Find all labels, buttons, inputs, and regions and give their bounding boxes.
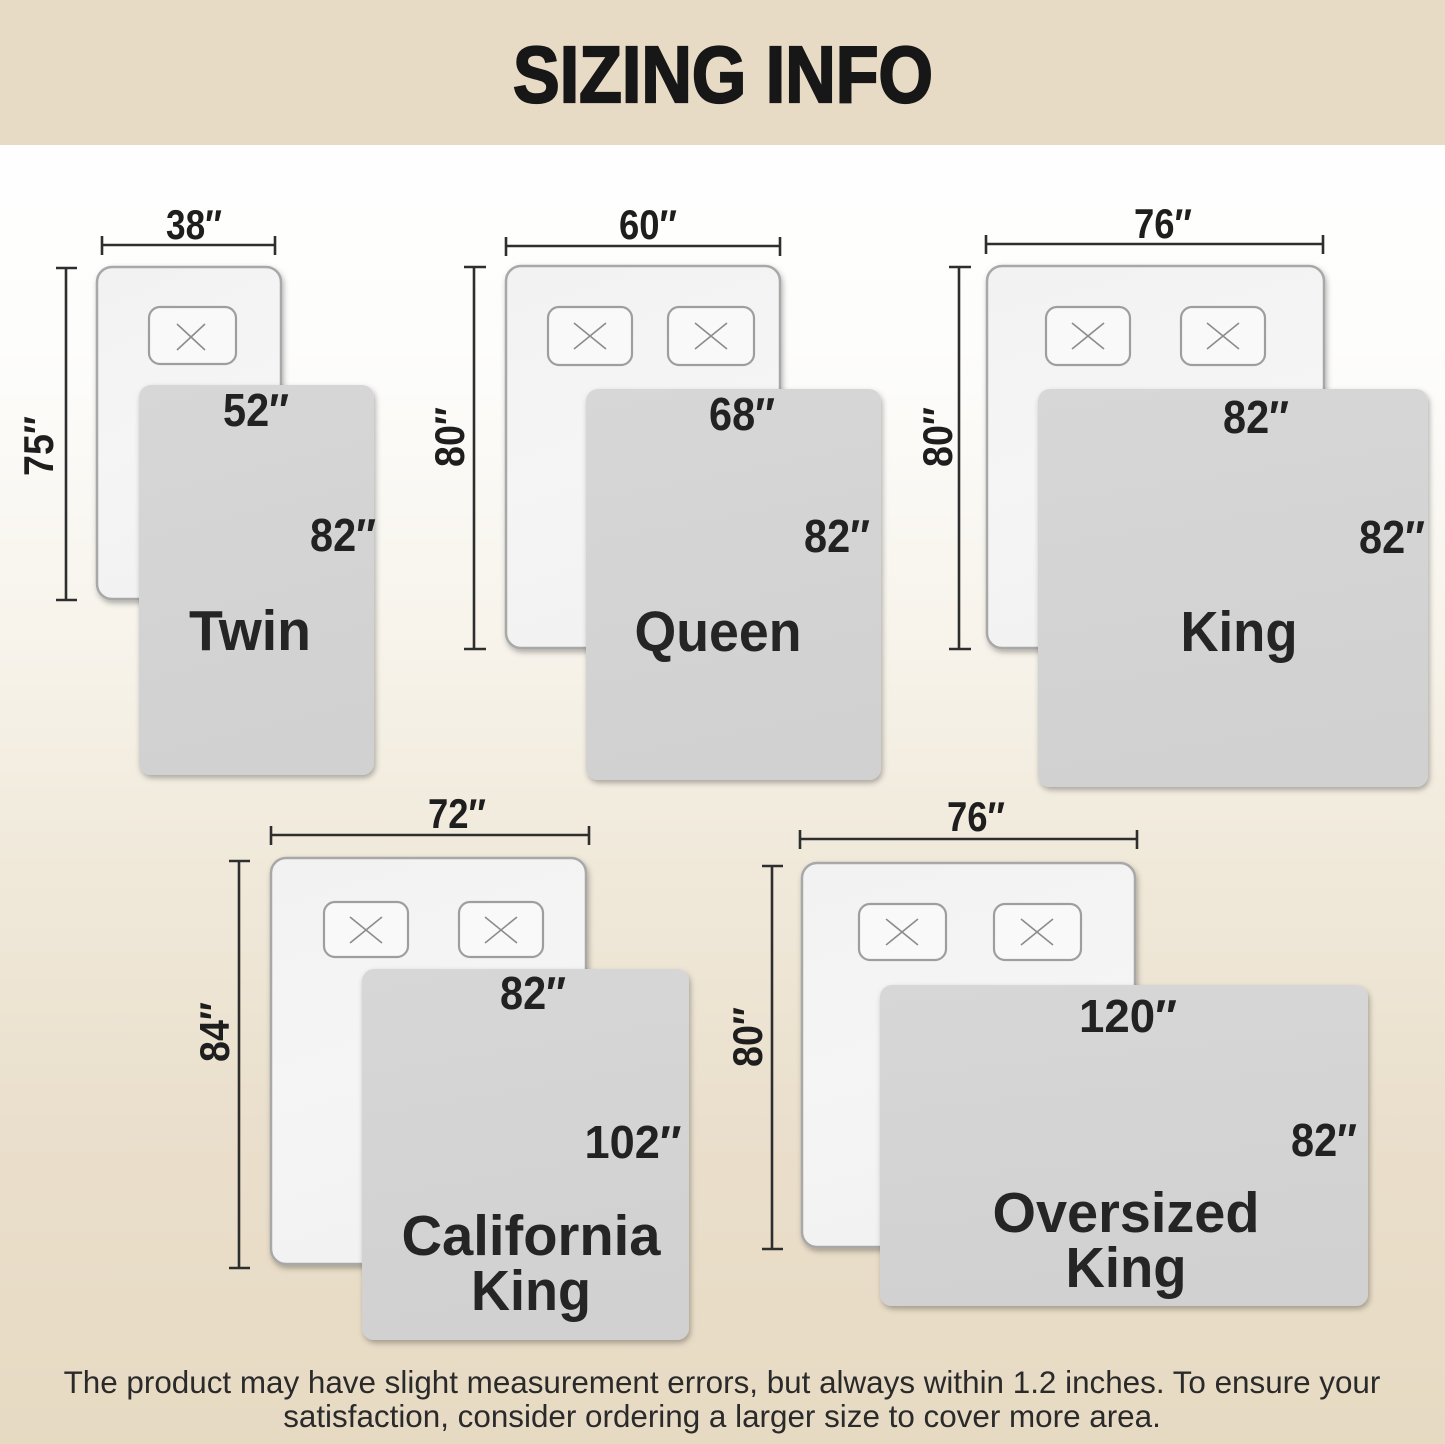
svg-text:68″: 68″ [709,388,775,440]
svg-text:82″: 82″ [1223,391,1289,443]
svg-text:76″: 76″ [947,793,1005,840]
svg-text:52″: 52″ [223,384,289,436]
svg-text:82″: 82″ [1291,1114,1357,1166]
svg-text:60″: 60″ [619,201,677,248]
svg-text:82″: 82″ [310,509,376,561]
svg-text:satisfaction, consider orderin: satisfaction, consider ordering a larger… [283,1399,1161,1434]
svg-text:80″: 80″ [914,407,961,467]
svg-text:The product may have slight me: The product may have slight measurement … [64,1365,1381,1400]
svg-text:SIZING INFO: SIZING INFO [513,30,933,119]
svg-text:76″: 76″ [1134,200,1192,247]
svg-text:82″: 82″ [500,967,566,1019]
svg-text:84″: 84″ [191,1002,238,1062]
svg-text:120″: 120″ [1079,990,1177,1042]
svg-text:King: King [471,1259,591,1323]
svg-text:38″: 38″ [166,201,222,248]
svg-text:Queen: Queen [635,600,802,664]
svg-text:102″: 102″ [585,1116,682,1168]
svg-text:Twin: Twin [189,599,311,663]
svg-text:80″: 80″ [724,1007,771,1067]
svg-text:King: King [1066,1236,1187,1300]
svg-text:82″: 82″ [804,510,870,562]
svg-text:72″: 72″ [428,790,486,837]
svg-text:80″: 80″ [426,407,473,467]
svg-text:75″: 75″ [15,416,62,476]
svg-text:King: King [1181,600,1298,664]
svg-text:82″: 82″ [1359,511,1425,563]
